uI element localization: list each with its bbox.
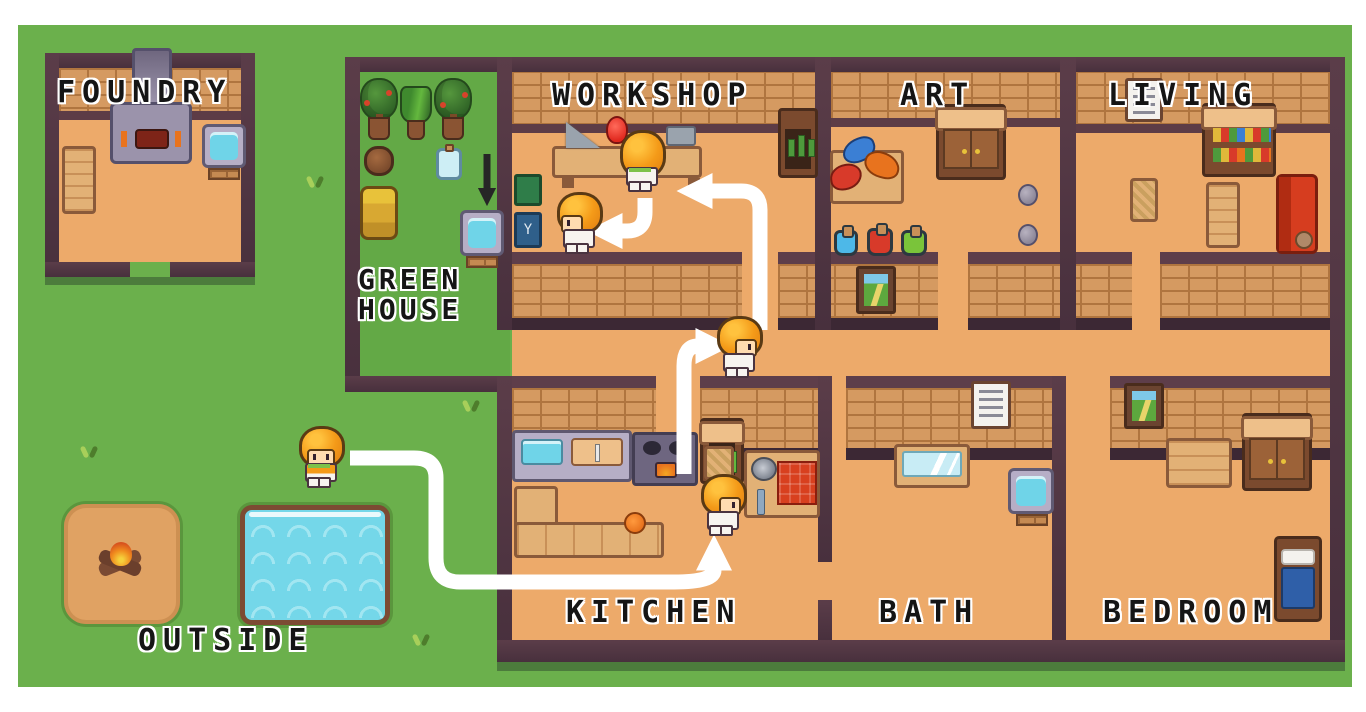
game-map: FOUNDRY GREEN HOUSE xyxy=(0,0,1366,712)
kitchen-sink xyxy=(521,439,563,465)
foundry-wall-bottom-right xyxy=(170,262,255,277)
bedroom-wardrobe xyxy=(1242,413,1312,491)
grass-tuft xyxy=(412,634,430,648)
potion-green xyxy=(901,230,927,256)
art-wardrobe xyxy=(936,104,1006,180)
knife-icon xyxy=(595,444,600,462)
room-label-workshop: WORKSHOP xyxy=(552,81,753,111)
furnace xyxy=(110,102,192,164)
art-living-bottom-wall xyxy=(968,252,1132,330)
room-label-kitchen: KITCHEN xyxy=(566,598,741,628)
living-bottom-wall xyxy=(1160,252,1330,330)
art-living-divider xyxy=(1060,57,1076,330)
living-long-table xyxy=(1206,182,1240,248)
books-row xyxy=(1213,148,1271,162)
stone xyxy=(1018,224,1038,246)
house-shadow xyxy=(497,662,1345,671)
kitchen-bath-divider-lower xyxy=(818,600,832,640)
stove xyxy=(632,432,698,486)
bathtub-water xyxy=(902,451,962,477)
pan-icon xyxy=(751,457,777,481)
furnace-fire-slot xyxy=(135,129,169,149)
cutting-board xyxy=(571,438,623,466)
hallway-landscape-painting xyxy=(856,266,896,314)
stove-fire xyxy=(655,462,677,478)
bath-bedroom-divider xyxy=(1052,376,1066,640)
bath-water-basin xyxy=(1008,468,1054,514)
bedroom-desk xyxy=(1166,438,1232,488)
bed-pillow xyxy=(1281,549,1315,565)
saw-icon xyxy=(566,122,600,148)
grass-tuft xyxy=(462,400,480,414)
kitchen-wall-left xyxy=(497,376,512,652)
green-book-icon xyxy=(514,174,542,206)
greenhouse-basin-pedestal xyxy=(466,256,498,268)
agent-outside[interactable] xyxy=(296,426,342,484)
bath-basin-pedestal xyxy=(1016,514,1048,526)
agent-hallway[interactable] xyxy=(714,316,760,374)
room-label-bedroom: BEDROOM xyxy=(1103,598,1278,628)
house-wall-top xyxy=(345,57,1345,72)
workbench-leg xyxy=(688,178,700,188)
foundry-wall-bottom-left xyxy=(45,262,130,277)
potion-red xyxy=(867,228,893,256)
bookshelf xyxy=(1202,103,1276,177)
books-row xyxy=(1213,128,1271,142)
greenhouse-workshop-wall xyxy=(497,57,512,330)
bedroom-landscape-painting xyxy=(1124,383,1164,429)
kitchen-bath-divider-upper xyxy=(818,376,832,562)
furnace-glow-right xyxy=(175,131,181,147)
foundry-basin-pedestal xyxy=(208,168,240,180)
room-label-foundry: FOUNDRY xyxy=(57,78,232,108)
room-label-greenhouse-line2: HOUSE xyxy=(358,296,462,324)
living-chair xyxy=(1130,178,1158,222)
greenhouse-wall-left xyxy=(345,57,360,392)
agent-workbench[interactable] xyxy=(617,130,663,188)
stone xyxy=(1018,184,1038,206)
workbench-leg xyxy=(562,178,574,188)
room-label-art: ART xyxy=(900,81,975,111)
workshop-bottom-wall xyxy=(512,252,742,330)
greenhouse-water-basin xyxy=(460,210,504,256)
agent-workshop-helper[interactable] xyxy=(554,192,600,250)
fruit-icon xyxy=(624,512,646,534)
bathtub xyxy=(894,444,970,488)
planter-barrel xyxy=(360,186,398,240)
greenhouse-wall-bottom xyxy=(345,376,512,392)
furnace-glow-left xyxy=(121,131,127,147)
potted-tree xyxy=(360,78,398,140)
bed-blanket xyxy=(1281,567,1315,609)
room-label-bath: BATH xyxy=(879,598,979,628)
grass-tuft xyxy=(80,446,98,460)
potted-aloe xyxy=(400,86,432,140)
bed xyxy=(1274,536,1322,622)
foundry-shelf-cart xyxy=(62,146,96,214)
workshop-art-divider xyxy=(815,57,831,330)
workshop-bottle-cabinet xyxy=(778,108,818,178)
house-wall-bottom xyxy=(497,640,1345,662)
room-label-living: LIVING xyxy=(1108,81,1258,111)
campfire-flame xyxy=(110,542,132,566)
pond xyxy=(240,505,390,625)
fork-icon xyxy=(757,489,765,515)
room-label-greenhouse-line1: GREEN xyxy=(358,266,462,294)
potted-tree xyxy=(434,78,472,140)
teddy-bear xyxy=(1295,231,1313,249)
bath-wall-note xyxy=(971,381,1011,429)
grass-tuft xyxy=(306,176,324,190)
house-wall-right xyxy=(1330,57,1345,652)
clay-pot xyxy=(364,146,394,176)
metal-box-icon xyxy=(666,126,696,146)
foundry-shadow xyxy=(45,277,255,285)
kitchen-sink-counter xyxy=(512,430,632,482)
blue-book-icon: Y xyxy=(514,212,542,248)
potion-blue xyxy=(834,230,858,256)
prep-table xyxy=(744,450,820,518)
red-sofa xyxy=(1276,174,1318,254)
red-cloth xyxy=(777,461,817,505)
foundry-water-basin xyxy=(202,124,246,168)
agent-kitchen[interactable] xyxy=(698,474,744,532)
glass-jar xyxy=(436,148,462,180)
room-label-outside: OUTSIDE xyxy=(138,626,313,656)
